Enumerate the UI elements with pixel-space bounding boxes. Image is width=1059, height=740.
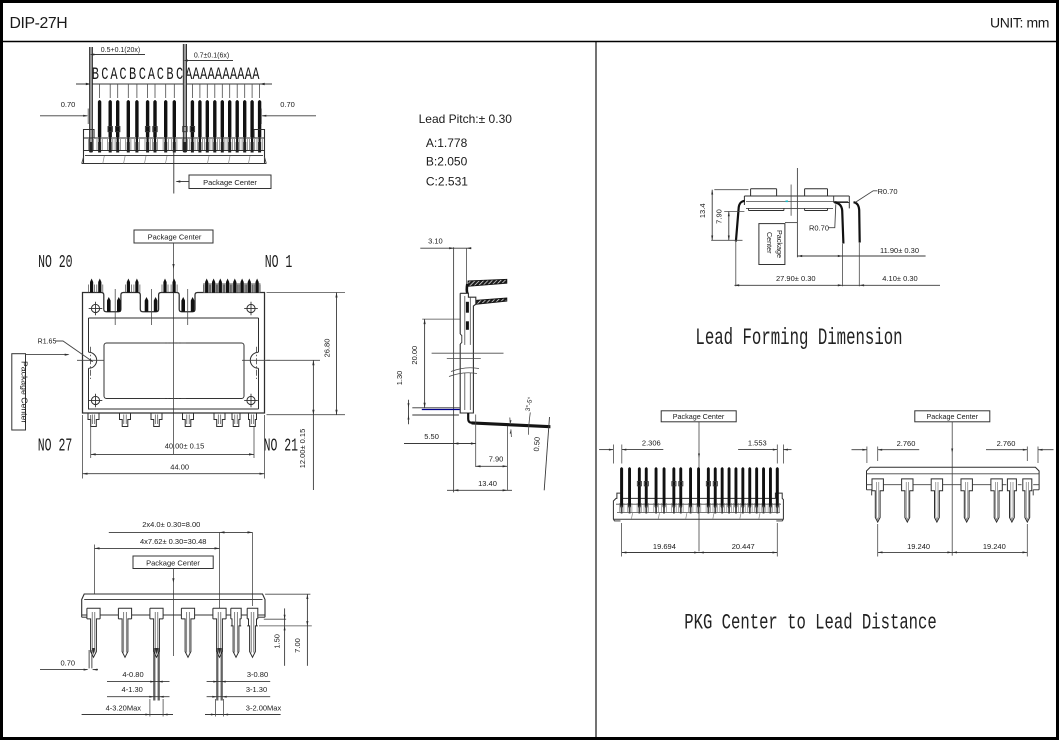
svg-text:C: C	[139, 66, 146, 85]
svg-text:A: A	[200, 66, 207, 85]
svg-text:2x4.0± 0.30=8.00: 2x4.0± 0.30=8.00	[142, 520, 200, 529]
svg-text:Lead Forming Dimension: Lead Forming Dimension	[695, 325, 902, 351]
svg-text:3-2.00Max: 3-2.00Max	[246, 704, 282, 713]
svg-text:A: A	[207, 66, 214, 85]
svg-text:A: A	[110, 66, 117, 85]
svg-text:4-1.30: 4-1.30	[122, 685, 143, 694]
svg-text:19.694: 19.694	[653, 542, 676, 551]
svg-text:1.553: 1.553	[748, 439, 767, 448]
svg-text:0.70: 0.70	[61, 100, 76, 109]
svg-text:3.10: 3.10	[428, 237, 443, 246]
svg-text:7.90: 7.90	[489, 454, 504, 463]
svg-text:40.00± 0.15: 40.00± 0.15	[165, 442, 205, 451]
svg-text:7.00: 7.00	[293, 638, 302, 653]
svg-text:C: C	[157, 66, 164, 85]
svg-text:20.00: 20.00	[410, 346, 419, 365]
svg-text:7.90: 7.90	[715, 209, 724, 224]
svg-text:2.306: 2.306	[642, 439, 661, 448]
svg-text:4x7.62± 0.30=30.48: 4x7.62± 0.30=30.48	[140, 537, 206, 546]
svg-text:2.760: 2.760	[897, 439, 916, 448]
svg-text:1.30: 1.30	[395, 371, 404, 386]
svg-text:Package Center: Package Center	[927, 412, 979, 421]
svg-text:R1.65: R1.65	[38, 339, 57, 346]
svg-text:2.760: 2.760	[997, 439, 1016, 448]
svg-text:44.00: 44.00	[170, 463, 189, 472]
svg-text:NO 21: NO 21	[264, 435, 298, 457]
svg-text:0.70: 0.70	[60, 658, 75, 667]
svg-text:A:1.778: A:1.778	[426, 136, 468, 150]
svg-text:Package Center: Package Center	[20, 361, 30, 423]
svg-text:19.240: 19.240	[983, 542, 1006, 551]
svg-text:A: A	[222, 66, 229, 85]
svg-text:1.50: 1.50	[272, 634, 281, 649]
svg-text:A: A	[148, 66, 155, 85]
svg-text:PKG Center to Lead Distance: PKG Center to Lead Distance	[684, 610, 936, 636]
svg-text:4-0.80: 4-0.80	[122, 670, 143, 679]
svg-text:DIP-27H: DIP-27H	[10, 15, 68, 32]
svg-text:B: B	[166, 66, 173, 85]
svg-text:A: A	[215, 66, 222, 85]
svg-text:R0.70: R0.70	[809, 224, 829, 233]
svg-text:Package Center: Package Center	[148, 232, 202, 241]
svg-text:C: C	[176, 66, 183, 85]
svg-text:A: A	[237, 66, 244, 85]
svg-text:0.7±0.1(6x): 0.7±0.1(6x)	[194, 53, 229, 60]
svg-text:3-1.30: 3-1.30	[246, 685, 267, 694]
svg-text:0.50: 0.50	[532, 437, 542, 452]
svg-text:A: A	[230, 66, 237, 85]
svg-text:A: A	[252, 66, 259, 85]
svg-text:B: B	[129, 66, 136, 85]
svg-text:C: C	[119, 66, 126, 85]
svg-text:27.90± 0.30: 27.90± 0.30	[776, 274, 816, 283]
svg-text:B:2.050: B:2.050	[426, 155, 468, 169]
svg-text:4-3.20Max: 4-3.20Max	[106, 704, 142, 713]
svg-text:0.70: 0.70	[280, 100, 295, 109]
svg-text:0.5+0.1(20x): 0.5+0.1(20x)	[101, 47, 141, 54]
svg-text:NO 1: NO 1	[265, 251, 293, 273]
svg-text:3-0.80: 3-0.80	[247, 670, 268, 679]
svg-text:NO 27: NO 27	[38, 435, 72, 457]
svg-text:Lead Pitch:± 0.30: Lead Pitch:± 0.30	[419, 112, 513, 126]
svg-text:Package: Package	[775, 230, 784, 258]
svg-text:13.40: 13.40	[478, 479, 497, 488]
svg-text:A: A	[192, 66, 199, 85]
svg-text:11.90± 0.30: 11.90± 0.30	[880, 246, 919, 255]
svg-text:Package Center: Package Center	[146, 559, 200, 568]
svg-text:Package Center: Package Center	[673, 412, 725, 421]
svg-text:4.10± 0.30: 4.10± 0.30	[882, 274, 917, 283]
svg-text:Package Center: Package Center	[203, 178, 257, 187]
svg-text:R0.70: R0.70	[877, 187, 897, 196]
svg-text:13.4: 13.4	[698, 203, 707, 218]
svg-text:12.00± 0.15: 12.00± 0.15	[298, 429, 307, 469]
svg-text:A: A	[245, 66, 252, 85]
svg-text:20.447: 20.447	[732, 542, 755, 551]
svg-text:26.80: 26.80	[323, 339, 332, 358]
svg-text:Center: Center	[765, 232, 774, 254]
svg-text:C: C	[101, 66, 108, 85]
svg-text:NO 20: NO 20	[38, 251, 72, 273]
svg-text:C:2.531: C:2.531	[426, 174, 468, 188]
svg-text:5.50: 5.50	[424, 432, 439, 441]
svg-text:UNIT: mm: UNIT: mm	[990, 15, 1049, 31]
svg-text:19.240: 19.240	[907, 542, 930, 551]
